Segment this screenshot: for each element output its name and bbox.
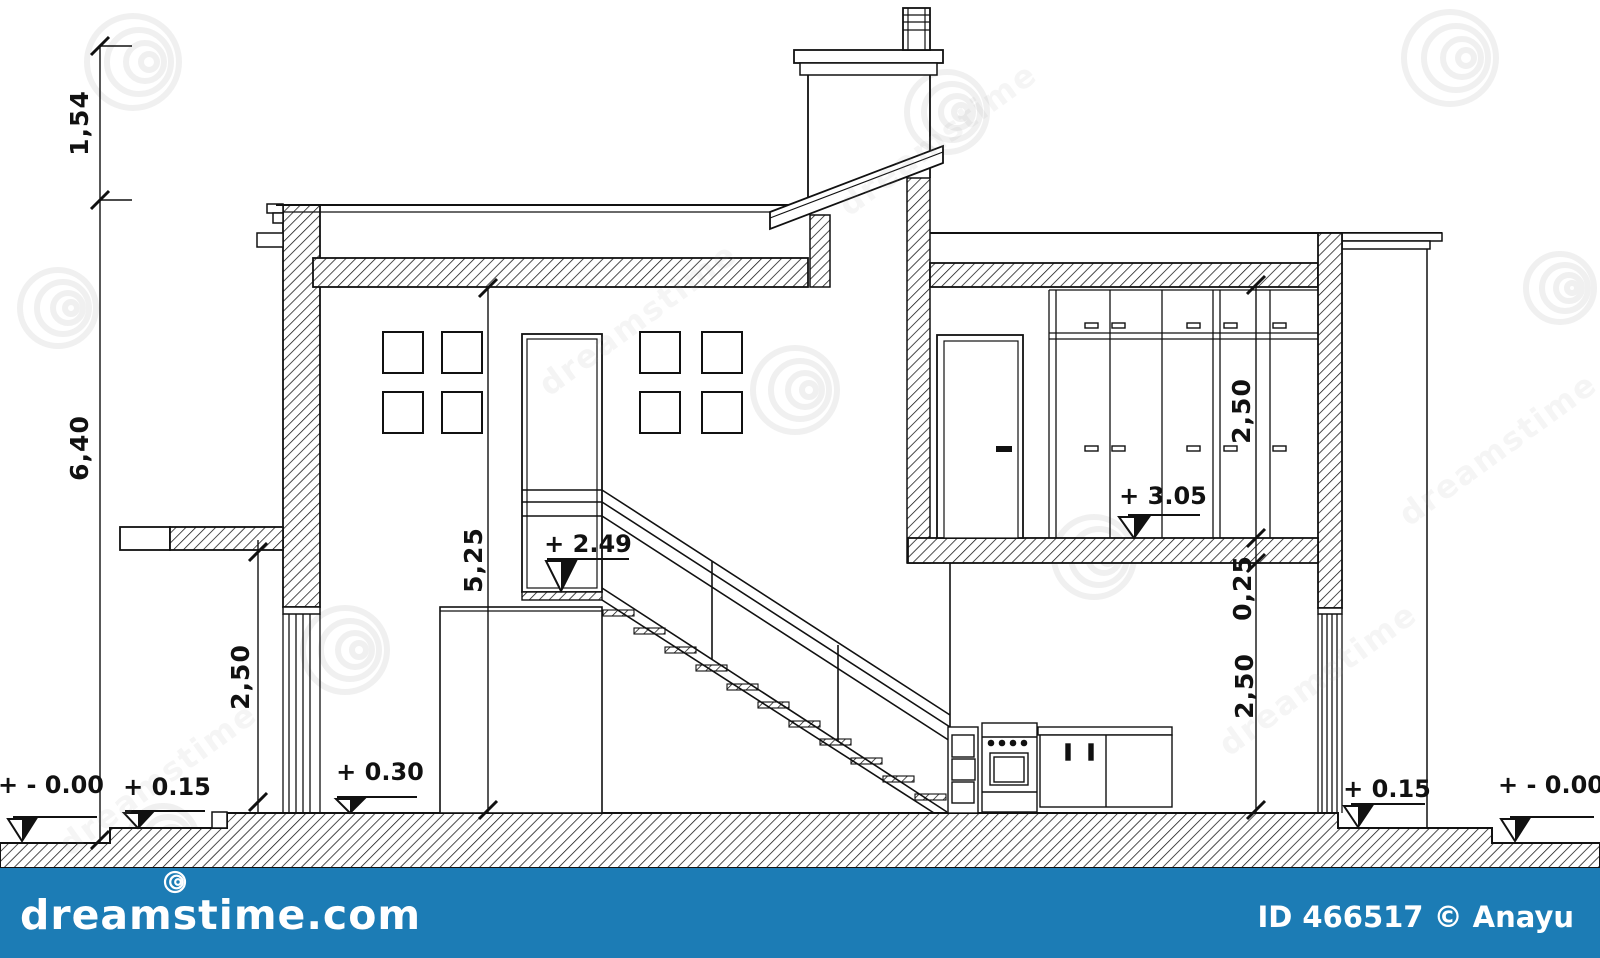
level-step-left: + 0.15 [97,773,237,801]
chimney-cap [794,50,943,63]
logo-spiral-icon [163,869,189,895]
cornice-step-right [1342,233,1442,241]
right-wall [1318,233,1427,828]
watermark-spirals [20,12,1594,874]
watermarked-architectural-drawing: dreamstime dreamstime dreamstime dreamst… [0,0,1600,958]
image-credit: ID 466517 © Anayu [1257,900,1574,934]
window-sill-left [257,233,283,247]
level-ground-floor: + 0.30 [310,758,450,786]
level-ground-right: + - 0.00 [1481,771,1600,799]
kitchen [948,723,1172,813]
level-landing: + 2.49 [518,530,658,558]
door-handle [996,446,1012,452]
entry-step [212,812,227,828]
stove [982,723,1037,812]
dim-total-height: 6,40 [65,388,95,508]
level-upper-floor: + 3.05 [1093,482,1233,510]
section-drawing [0,0,1600,958]
chimney [794,8,943,563]
counter-cabinet [1038,727,1172,807]
chimney-pipe [903,8,930,50]
roof-left [276,205,808,287]
cabinet-handle [1066,744,1070,760]
cabinet-handle [1089,744,1093,760]
stair-landing-slab [522,592,602,600]
under-stair-closet [440,607,602,813]
upper-room-door [937,335,1023,538]
dreamstime-logo: dreamstime.com [20,891,421,939]
dim-lower-left: 2,50 [226,617,256,737]
dim-chimney-height: 1,54 [65,63,95,183]
dim-stairwell-height: 5,25 [459,500,489,620]
dim-upper-right: 2,50 [1227,351,1257,471]
level-plinth-right: + 0.15 [1317,775,1457,803]
dim-lower-right: 2,50 [1230,626,1260,746]
stairwell-wall [907,178,930,563]
roof-right [930,233,1442,287]
